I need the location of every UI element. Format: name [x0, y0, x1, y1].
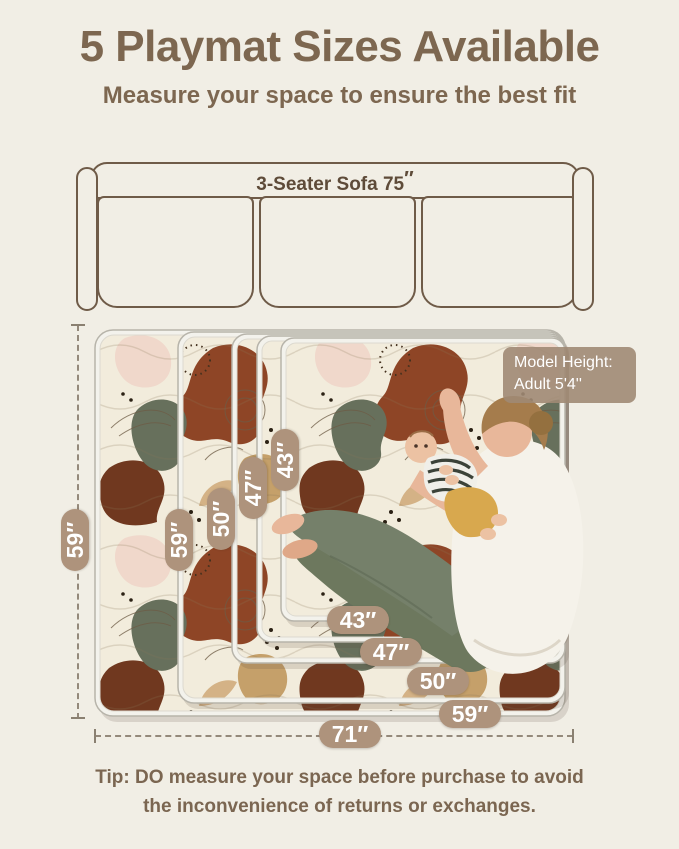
model-photo	[269, 385, 583, 673]
page-subtitle: Measure your space to ensure the best fi…	[0, 82, 679, 110]
overall-height-badge: 59″	[61, 509, 89, 571]
size-badge-vertical-59: 59″	[165, 509, 193, 571]
tip-text: Tip: DO measure your space before purcha…	[0, 764, 679, 821]
sofa-label-text: 3-Seater Sofa 75	[256, 174, 404, 195]
sofa-seat-cushion	[97, 196, 254, 308]
playmat-size-infographic: 5 Playmat Sizes Available Measure your s…	[0, 0, 679, 849]
sofa-seat-cushion	[421, 196, 578, 308]
model-height-badge: Model Height: Adult 5'4''	[503, 347, 636, 403]
dimension-tick	[71, 717, 85, 719]
model-height-line1: Model Height:	[514, 352, 636, 374]
size-badge-vertical-50: 50″	[207, 488, 235, 550]
size-badge-horizontal-59: 59″	[439, 700, 501, 728]
sofa-seat-cushion	[259, 196, 416, 308]
dimension-tick	[71, 324, 85, 326]
inch-mark: ″	[404, 168, 414, 190]
page-title: 5 Playmat Sizes Available	[0, 22, 679, 72]
size-badge-horizontal-43: 43″	[327, 606, 389, 634]
model-height-line2: Adult 5'4''	[514, 374, 636, 396]
size-badge-vertical-43: 43″	[271, 429, 299, 491]
sofa-label: 3-Seater Sofa 75″	[90, 168, 580, 196]
overall-width-badge: 71″	[319, 720, 381, 748]
size-badge-vertical-47: 47″	[239, 457, 267, 519]
dimension-tick	[94, 729, 96, 743]
size-badge-horizontal-47: 47″	[360, 638, 422, 666]
tip-line1: Tip: DO measure your space before purcha…	[0, 764, 679, 793]
size-badge-horizontal-50: 50″	[407, 667, 469, 695]
dimension-tick	[572, 729, 574, 743]
tip-line2: the inconvenience of returns or exchange…	[0, 793, 679, 822]
